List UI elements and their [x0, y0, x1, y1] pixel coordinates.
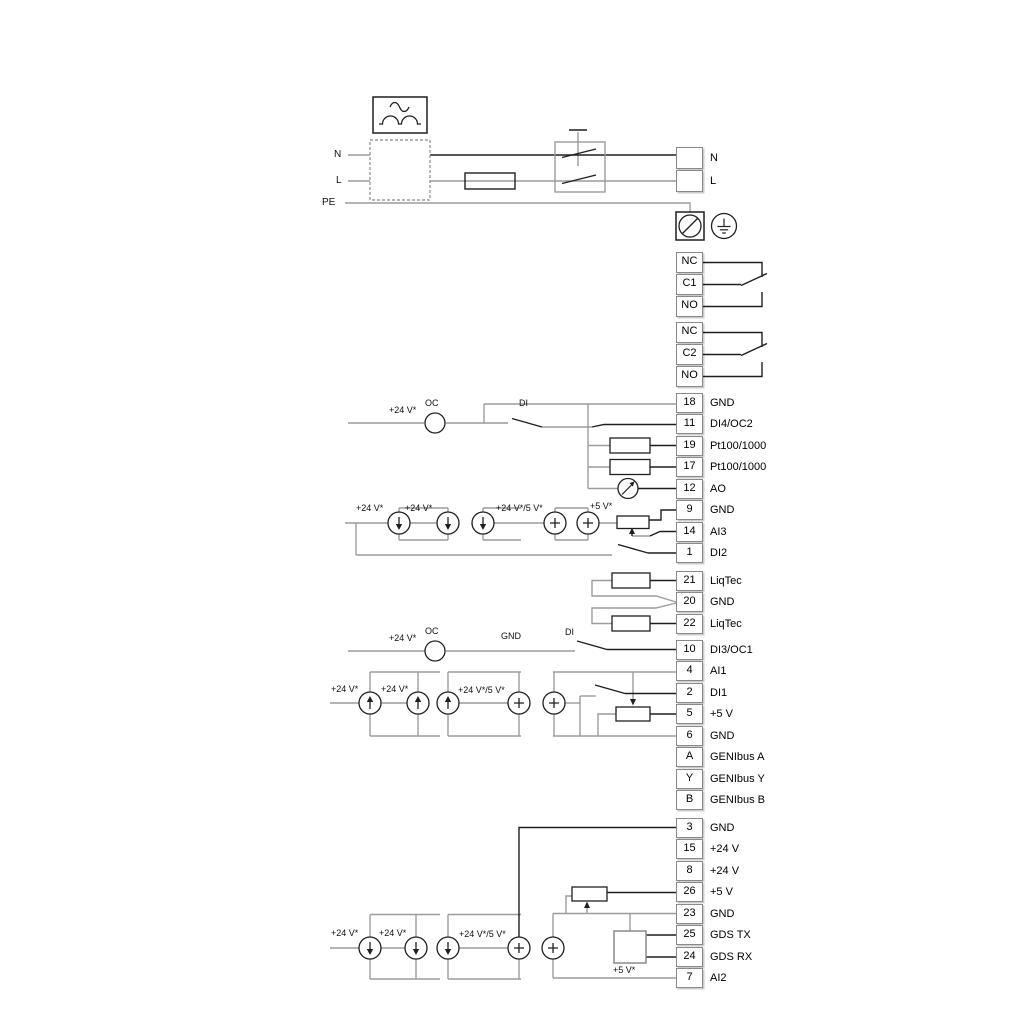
terminal-label-+24 V: +24 V — [710, 842, 739, 856]
terminal-cell-NC: NC — [676, 252, 703, 273]
terminal-label-GDS TX: GDS TX — [710, 928, 751, 942]
wiper-arrow — [630, 699, 636, 706]
terminal-cell-14: 14 — [676, 522, 703, 542]
terminal-label-GND: GND — [710, 907, 734, 921]
potentiometer-ai2 — [572, 887, 607, 901]
potentiometer-ai1 — [616, 707, 650, 721]
terminal-label-GENIbus B: GENIbus B — [710, 793, 765, 807]
terminal-label-Pt100/1000: Pt100/1000 — [710, 460, 766, 474]
terminal-cell-7: 7 — [676, 968, 703, 988]
terminal-cell-A: A — [676, 747, 703, 767]
terminal-label-DI4/OC2: DI4/OC2 — [710, 417, 753, 431]
terminal-cell-NO: NO — [676, 366, 703, 387]
terminal-cell-N — [676, 147, 703, 169]
oc-circle — [425, 641, 445, 661]
terminal-cell-18: 18 — [676, 393, 703, 413]
terminal-label-N: N — [710, 151, 718, 165]
label-pe_left: PE — [322, 197, 335, 208]
resistor-pt100-2 — [610, 460, 650, 475]
terminal-cell-20: 20 — [676, 592, 703, 612]
terminal-label-AI2: AI2 — [710, 971, 727, 985]
terminal-cell-10: 10 — [676, 640, 703, 660]
label-plus24: +24 V* — [381, 685, 408, 695]
pe-wire — [345, 203, 690, 212]
terminal-cell-17: 17 — [676, 457, 703, 477]
converter-box-icon — [373, 97, 427, 133]
gds-sensor-box — [614, 931, 646, 963]
terminal-label-GND: GND — [710, 729, 734, 743]
label-plus24_5: +24 V*/5 V* — [496, 504, 543, 514]
label-plus24: +24 V* — [356, 504, 383, 514]
terminal-label-L: L — [710, 174, 716, 188]
terminal-label-+5 V: +5 V — [710, 707, 733, 721]
label-gnd: GND — [501, 632, 521, 642]
label-plus24_5: +24 V*/5 V* — [458, 686, 505, 696]
wiring-diagram: NLNCC1NONCC2NO18GND11DI4/OC219Pt100/1000… — [0, 0, 1024, 1024]
terminal-cell-C1: C1 — [676, 274, 703, 295]
terminal-label-Pt100/1000: Pt100/1000 — [710, 439, 766, 453]
terminal-cell-4: 4 — [676, 661, 703, 681]
label-plus5: +5 V* — [613, 966, 635, 976]
terminal-cell-15: 15 — [676, 839, 703, 859]
terminal-label-GENIbus A: GENIbus A — [710, 750, 764, 764]
terminal-label-DI3/OC1: DI3/OC1 — [710, 643, 753, 657]
oc-circle — [425, 413, 445, 433]
terminal-label-AO: AO — [710, 482, 726, 496]
terminal-cell-1: 1 — [676, 543, 703, 563]
label-oc: OC — [425, 627, 439, 637]
terminal-cell-11: 11 — [676, 414, 703, 434]
wires-gray — [330, 132, 690, 979]
terminal-label-GND: GND — [710, 821, 734, 835]
label-n_left: N — [334, 149, 341, 160]
main-switch-box — [555, 142, 605, 192]
terminal-cell-C2: C2 — [676, 344, 703, 365]
terminal-label-AI1: AI1 — [710, 664, 727, 678]
terminal-cell-26: 26 — [676, 882, 703, 902]
label-plus24: +24 V* — [389, 406, 416, 416]
terminal-cell-2: 2 — [676, 683, 703, 703]
terminal-cell-5: 5 — [676, 704, 703, 724]
terminal-cell-Y: Y — [676, 769, 703, 789]
terminal-cell-19: 19 — [676, 436, 703, 456]
terminal-label-+24 V: +24 V — [710, 864, 739, 878]
terminal-label-GND: GND — [710, 503, 734, 517]
terminal-cell-6: 6 — [676, 726, 703, 746]
terminal-label-DI1: DI1 — [710, 686, 727, 700]
filter-box — [370, 140, 430, 200]
terminal-label-GND: GND — [710, 396, 734, 410]
terminal-label-AI3: AI3 — [710, 525, 727, 539]
wiper-arrow — [584, 902, 590, 909]
label-di: DI — [565, 628, 574, 638]
terminal-cell-NC: NC — [676, 322, 703, 343]
resistor-pt100-1 — [610, 438, 650, 453]
label-oc: OC — [425, 399, 439, 409]
label-plus5: +5 V* — [590, 502, 612, 512]
label-plus24: +24 V* — [405, 504, 432, 514]
terminal-cell-L — [676, 170, 703, 192]
terminal-cell-24: 24 — [676, 947, 703, 967]
terminal-label-+5 V: +5 V — [710, 885, 733, 899]
potentiometer-ai3 — [617, 516, 649, 529]
terminal-cell-8: 8 — [676, 861, 703, 881]
label-di: DI — [519, 399, 528, 409]
terminal-label-GND: GND — [710, 595, 734, 609]
terminal-label-GDS RX: GDS RX — [710, 950, 752, 964]
terminal-label-LiqTec: LiqTec — [710, 617, 742, 631]
label-plus24_5: +24 V*/5 V* — [459, 930, 506, 940]
terminal-cell-NO: NO — [676, 296, 703, 317]
terminal-cell-12: 12 — [676, 479, 703, 499]
terminal-label-DI2: DI2 — [710, 546, 727, 560]
label-plus24: +24 V* — [389, 634, 416, 644]
resistor-liqtec-1 — [612, 573, 650, 588]
resistor-liqtec-2 — [612, 616, 650, 631]
label-plus24: +24 V* — [331, 929, 358, 939]
terminal-cell-3: 3 — [676, 818, 703, 838]
terminal-cell-23: 23 — [676, 904, 703, 924]
label-plus24: +24 V* — [379, 929, 406, 939]
terminal-cell-25: 25 — [676, 925, 703, 945]
terminal-cell-22: 22 — [676, 614, 703, 634]
terminal-cell-21: 21 — [676, 571, 703, 591]
terminal-cell-9: 9 — [676, 500, 703, 520]
terminal-label-LiqTec: LiqTec — [710, 574, 742, 588]
terminal-cell-B: B — [676, 790, 703, 810]
label-l_left: L — [336, 175, 342, 186]
label-plus24: +24 V* — [331, 685, 358, 695]
terminal-label-GENIbus Y: GENIbus Y — [710, 772, 765, 786]
